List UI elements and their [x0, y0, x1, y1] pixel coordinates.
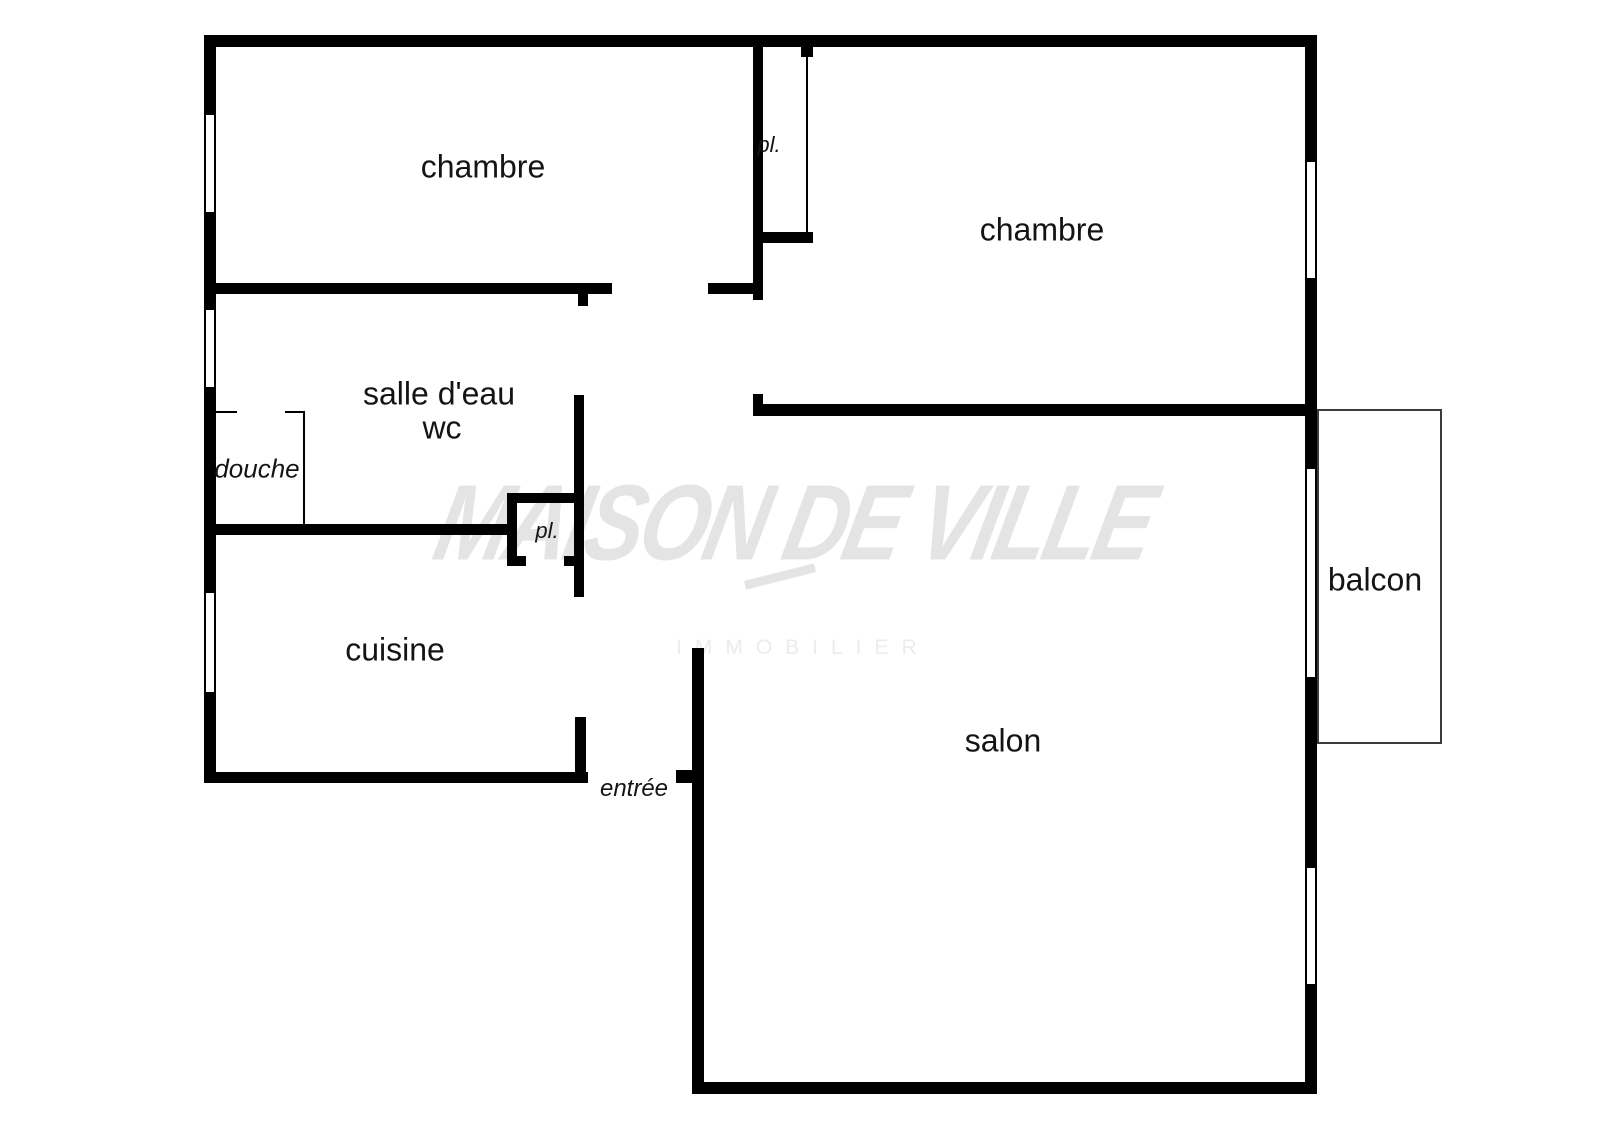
wall-placard2-foot — [507, 556, 526, 566]
door-jamb-chambre2 — [753, 394, 763, 404]
room-label-chambre-1: chambre — [421, 149, 546, 186]
room-label-salle-deau: salle d'eau — [363, 376, 515, 413]
douche-line-top-b — [285, 411, 305, 413]
wall-salon-left — [692, 648, 704, 1082]
window-balcony-door — [1305, 469, 1317, 677]
wall-exterior-left-seg1 — [204, 35, 216, 115]
wall-exterior-right-seg1 — [1305, 35, 1317, 162]
wall-cuisine-bottom — [204, 772, 588, 783]
room-label-cuisine: cuisine — [345, 632, 445, 669]
door-jamb-chambre1 — [578, 294, 588, 306]
room-label-chambre-2: chambre — [980, 212, 1105, 249]
window-chambre1 — [204, 115, 216, 212]
window-cuisine — [204, 593, 216, 692]
douche-line-right — [303, 411, 305, 524]
wall-exterior-right-seg4 — [1305, 984, 1317, 1094]
wall-exterior-left-seg2 — [204, 212, 216, 310]
room-label-placard-1: pl. — [757, 132, 780, 158]
watermark-brand: MAISON DE VILLE — [421, 455, 1164, 601]
room-label-wc: wc — [422, 410, 461, 447]
room-label-salon: salon — [965, 723, 1042, 760]
wall-placard1-left — [753, 43, 763, 300]
wall-placard2-top — [507, 493, 584, 503]
placard1-door-line — [806, 47, 808, 232]
wall-salon-left-nub — [676, 770, 692, 783]
room-label-entree: entrée — [600, 775, 668, 803]
wall-exterior-right-seg3 — [1305, 677, 1317, 868]
wall-exterior-left-seg4 — [204, 692, 216, 783]
door-jamb-placard2 — [564, 556, 577, 566]
wall-chambre1-south-left — [204, 283, 612, 294]
wall-salon-bottom — [692, 1082, 1317, 1094]
wall-douche-bottom — [204, 524, 508, 535]
floorplan-canvas: MAISON DE VILLE IMMOBILIER — [0, 0, 1600, 1131]
wall-exterior-left-seg3 — [204, 387, 216, 593]
room-label-douche: douche — [214, 454, 299, 485]
window-chambre2 — [1305, 162, 1317, 278]
window-salon — [1305, 868, 1317, 984]
wall-chambre2-south — [753, 404, 1305, 416]
room-label-balcon: balcon — [1328, 562, 1422, 599]
douche-line-top-a — [216, 411, 237, 413]
wall-exterior-right-seg2 — [1305, 278, 1317, 469]
door-jamb-entree — [575, 717, 586, 772]
wall-placard1-bottom — [753, 232, 813, 243]
window-salle-deau — [204, 310, 216, 387]
watermark-tagline: IMMOBILIER — [676, 636, 956, 660]
room-label-placard-2: pl. — [535, 518, 558, 544]
